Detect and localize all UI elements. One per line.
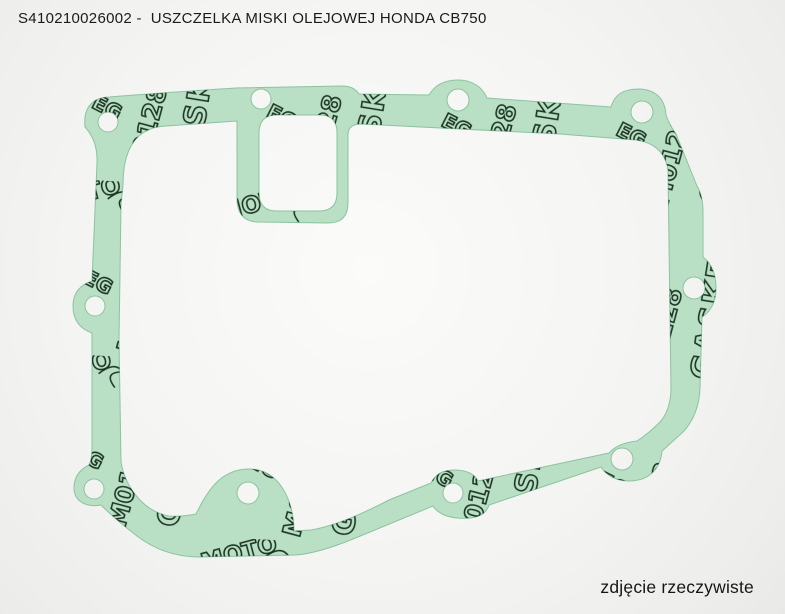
gasket-print-overlay	[73, 80, 716, 557]
gasket-body	[73, 80, 716, 557]
gasket-image: GASKET M0128 MOTO EG	[0, 0, 785, 614]
photo-caption: zdjęcie rzeczywiste	[600, 577, 754, 598]
gasket	[73, 80, 716, 557]
product-photo: S410210026002 - USZCZELKA MISKI OLEJOWEJ…	[0, 0, 785, 614]
